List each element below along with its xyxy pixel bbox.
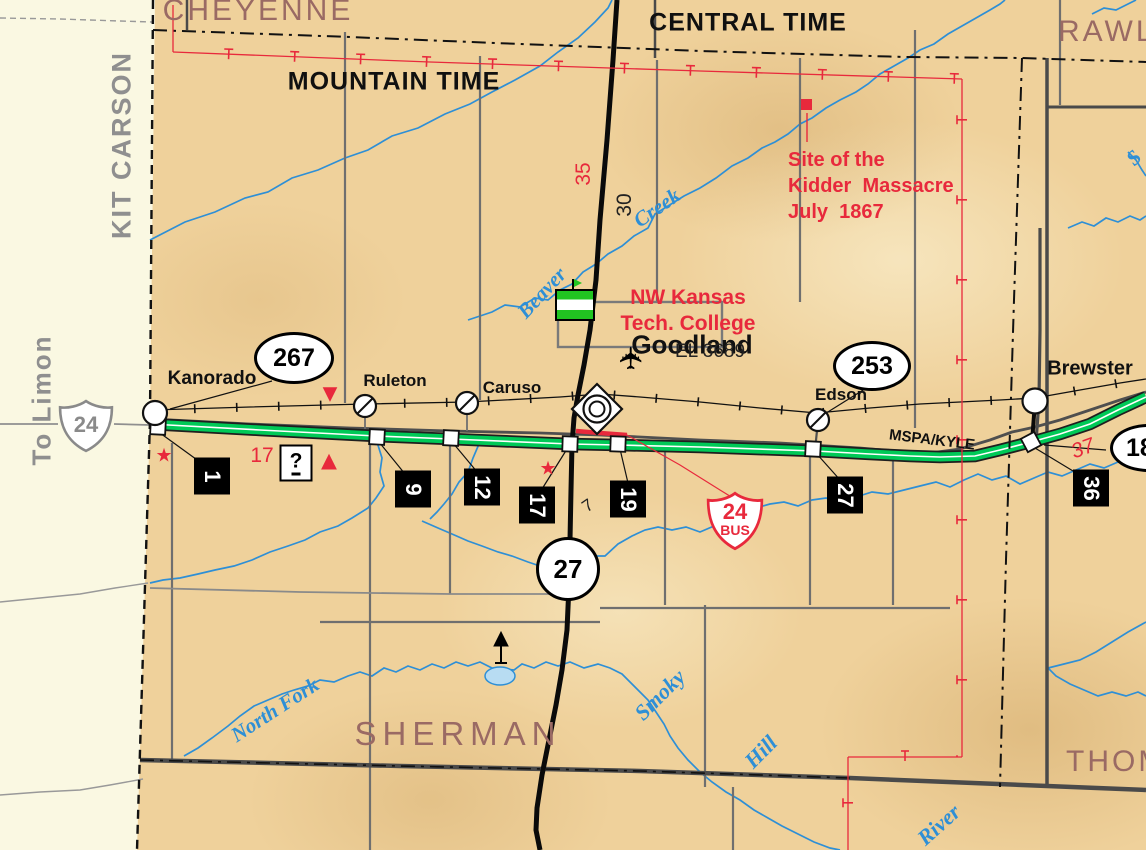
golf-flag xyxy=(574,279,582,287)
k27-shield: 27 xyxy=(536,537,600,601)
neighbor-county-kit-carson: KIT CARSON xyxy=(107,51,138,239)
exit-box-36: 36 xyxy=(1073,470,1109,507)
golf-course-icon xyxy=(555,289,595,321)
brewster-marker xyxy=(1023,389,1048,414)
town-label-caruso: Caruso xyxy=(483,378,542,398)
k253-shield: 253 xyxy=(833,341,911,391)
us24-shield-number: 24 xyxy=(58,412,114,438)
town-label-brewster: Brewster xyxy=(1047,358,1133,381)
star-icon: ★ xyxy=(539,458,556,481)
us24-shield: 24 xyxy=(58,399,114,453)
timezone-label-mountain: MOUNTAIN TIME xyxy=(288,68,501,97)
county-lines xyxy=(140,0,1146,790)
airport-icon: ✈ xyxy=(614,345,650,371)
kidder-massacre-note: Site of the Kidder Massacre July 1867 xyxy=(788,147,954,225)
pond xyxy=(485,667,515,685)
elevation-label: EL 3689 xyxy=(675,341,745,363)
bus24-shield-suffix: BUS xyxy=(706,522,764,538)
county-label-rawlins: RAWL xyxy=(1058,15,1146,49)
tourist-info-icon: ? xyxy=(280,445,313,482)
route-number-35: 35 xyxy=(572,162,596,185)
exit-box-9: 9 xyxy=(395,471,431,508)
college-label: NW Kansas Tech. College xyxy=(621,285,756,337)
county-label-cheyenne: CHEYENNE xyxy=(163,0,354,28)
exit-box-19: 19 xyxy=(610,481,646,518)
exit-box-17: 17 xyxy=(519,487,555,524)
exit-box-12: 12 xyxy=(464,469,500,506)
town-label-kanorado: Kanorado xyxy=(168,368,257,390)
boundary-dashdot xyxy=(140,30,1146,787)
exit-box-1: 1 xyxy=(194,458,230,495)
bus24-shield: 24 BUS xyxy=(706,491,764,551)
route-number-17: 17 xyxy=(250,444,273,468)
k267-shield: 267 xyxy=(254,332,334,384)
monument-icon xyxy=(494,632,508,663)
county-label-thomas: THOM xyxy=(1066,745,1146,779)
info-underline xyxy=(292,473,301,476)
town-label-ruleton: Ruleton xyxy=(363,371,426,391)
destination-to-limon: To Limon xyxy=(27,334,58,465)
star-icon: ★ xyxy=(155,445,172,468)
kanorado-marker xyxy=(143,401,167,425)
railroad xyxy=(152,379,1146,413)
timezone-label-central: CENTRAL TIME xyxy=(649,9,847,38)
colorado-road-south xyxy=(150,588,575,594)
highway-map: KIT CARSON To Limon CHEYENNE RAWL SHERMA… xyxy=(0,0,1146,850)
rest-area-triangle-up-icon: ▲ xyxy=(316,448,343,475)
rest-area-triangle-down-icon: ▼ xyxy=(318,382,343,407)
exit-box-27: 27 xyxy=(827,477,863,514)
county-label-sherman: SHERMAN xyxy=(354,715,561,753)
map-linework xyxy=(0,0,1146,850)
kidder-site-marker xyxy=(801,99,812,110)
